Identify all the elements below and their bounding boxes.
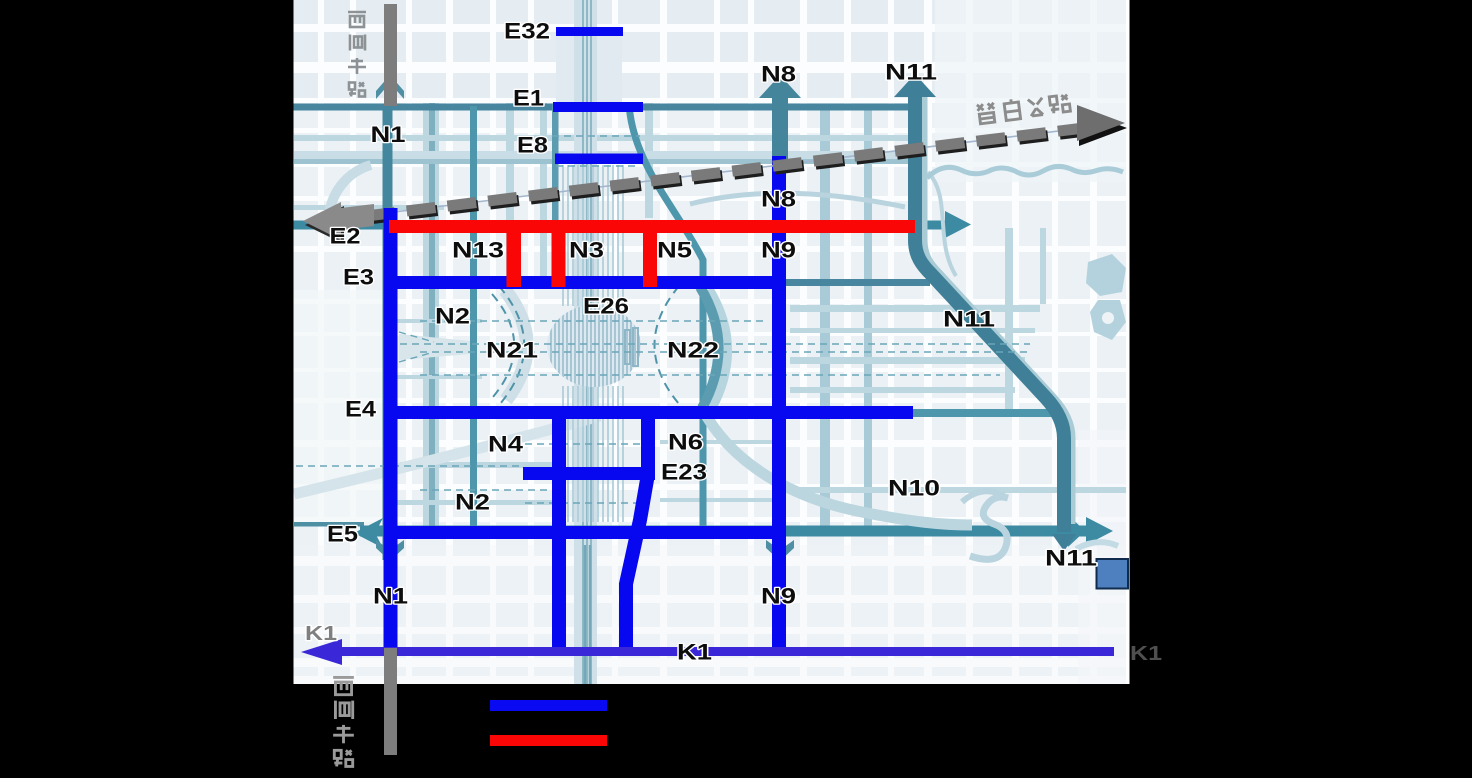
svg-text:E5: E5 [327, 522, 358, 547]
svg-text:E2: E2 [330, 224, 361, 249]
svg-text:E23: E23 [661, 460, 707, 485]
svg-text:N1: N1 [371, 122, 406, 147]
svg-text:N4: N4 [488, 432, 524, 457]
svg-text:E4: E4 [345, 397, 377, 422]
svg-text:K1: K1 [677, 640, 712, 665]
svg-text:N8: N8 [761, 187, 796, 212]
svg-text:N3: N3 [569, 238, 604, 263]
svg-text:N2: N2 [455, 490, 490, 515]
svg-text:N1: N1 [373, 584, 408, 609]
svg-text:E3: E3 [343, 265, 374, 290]
svg-text:N2: N2 [435, 304, 470, 329]
svg-text:N10: N10 [888, 476, 940, 501]
svg-text:N8: N8 [761, 62, 796, 87]
svg-text:N9: N9 [761, 584, 796, 609]
svg-text:N22: N22 [667, 338, 719, 363]
svg-text:E8: E8 [517, 133, 548, 158]
svg-text:E26: E26 [583, 294, 629, 319]
svg-text:N13: N13 [452, 238, 504, 263]
svg-text:N11: N11 [1045, 546, 1097, 571]
svg-text:N11: N11 [943, 307, 995, 332]
svg-text:N5: N5 [657, 238, 692, 263]
svg-text:E1: E1 [513, 86, 544, 111]
svg-text:N6: N6 [668, 430, 703, 455]
svg-text:K1: K1 [1130, 643, 1162, 665]
svg-text:E32: E32 [504, 19, 550, 44]
svg-text:N21: N21 [486, 338, 538, 363]
svg-text:N11: N11 [885, 60, 937, 85]
svg-text:N9: N9 [761, 238, 796, 263]
svg-text:K1: K1 [305, 623, 337, 645]
